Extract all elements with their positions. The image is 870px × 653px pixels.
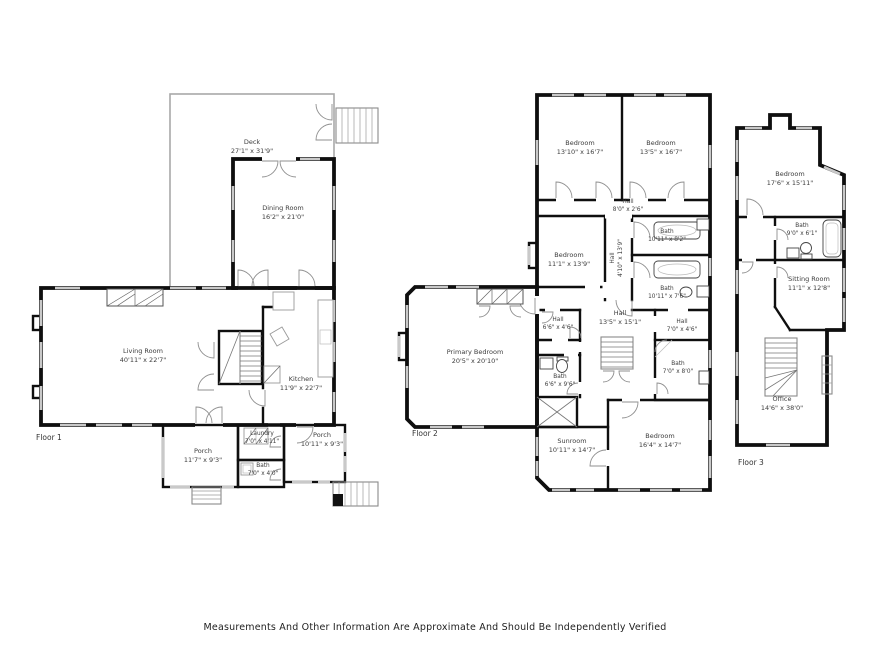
- room-label-porch-left: Porch 11'7" x 9'3": [184, 447, 222, 465]
- room-label-bedroom-top-left: Bedroom 13'10" x 16'7": [557, 139, 603, 157]
- room-label-primary-bedroom: Primary Bedroom 20'5" x 20'10": [447, 348, 504, 366]
- floorplan-drawing: [0, 0, 870, 653]
- room-label-laundry: Laundry 7'0" x 4'11": [245, 431, 279, 447]
- room-label-bedroom-middle: Bedroom 11'1" x 13'9": [548, 251, 590, 269]
- room-label-hall-top: Hall 8'0" x 2'6": [613, 199, 643, 215]
- room-label-bath-upper: Bath 10'11" x 8'2": [648, 229, 686, 245]
- disclaimer-text: Measurements And Other Information Are A…: [0, 622, 870, 633]
- room-label-bath-right: Bath 7'0" x 8'0": [663, 361, 693, 377]
- room-label-hall-vertical: Hall 4'10" x 13'9": [610, 239, 626, 277]
- room-label-bath-primary: Bath 6'6" x 9'6": [545, 374, 575, 390]
- floor3-label: Floor 3: [738, 458, 764, 467]
- room-label-sitting-room: Sitting Room 11'1" x 12'8": [788, 275, 830, 293]
- room-label-dining-room: Dining Room 16'2" x 21'0": [262, 204, 304, 222]
- floor2-label: Floor 2: [412, 429, 438, 438]
- floorplan-page: Deck 27'1" x 31'9" Dining Room 16'2" x 2…: [0, 0, 870, 653]
- room-label-deck: Deck 27'1" x 31'9": [231, 138, 273, 156]
- room-label-porch-right: Porch 10'11" x 9'3": [301, 431, 343, 449]
- room-label-living-room: Living Room 40'11" x 22'7": [120, 347, 166, 365]
- room-label-bath-f3: Bath 9'0" x 6'1": [787, 223, 817, 239]
- room-label-hall-center: Hall 13'5" x 15'1": [599, 309, 641, 327]
- room-label-bedroom-top-right: Bedroom 13'5" x 16'7": [640, 139, 682, 157]
- room-label-sunroom: Sunroom 10'11" x 14'7": [549, 437, 595, 455]
- room-label-bedroom-f3: Bedroom 17'6" x 15'11": [767, 170, 813, 188]
- room-label-hall-small: Hall 6'6" x 4'6": [543, 317, 573, 333]
- room-label-hall-right: Hall 7'0" x 4'6": [667, 319, 697, 335]
- room-label-bedroom-bottom: Bedroom 16'4" x 14'7": [639, 432, 681, 450]
- room-label-bath-f1: Bath 7'0" x 4'0": [248, 463, 278, 479]
- floor1-label: Floor 1: [36, 433, 62, 442]
- room-label-bath-lower: Bath 10'11" x 7'6": [648, 286, 686, 302]
- room-label-office: Office 14'6" x 38'0": [761, 395, 803, 413]
- room-label-kitchen: Kitchen 11'9" x 22'7": [280, 375, 322, 393]
